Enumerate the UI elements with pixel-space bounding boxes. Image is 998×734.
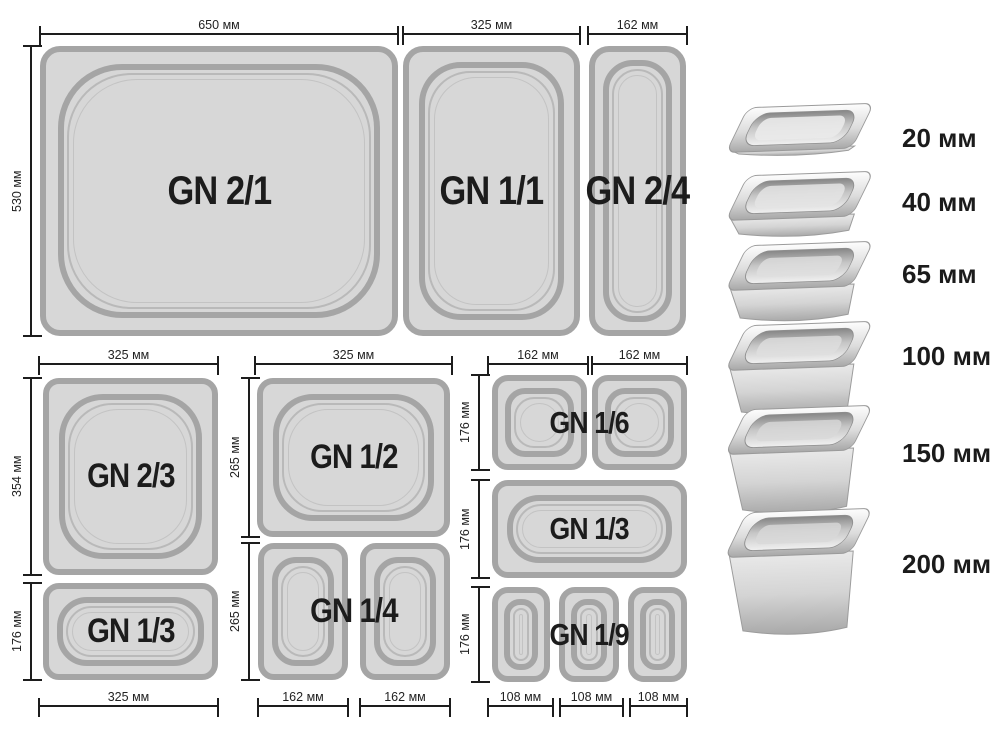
dim-label: 530 мм [6, 46, 28, 336]
dim-label: 354 мм [6, 378, 28, 575]
steel-pan-image [711, 97, 883, 167]
dim-162mm-top: 162 мм [588, 33, 687, 35]
steel-pan-photo-200mm [712, 505, 882, 648]
dim-176mm-d1: 176 мм [478, 375, 480, 470]
dim-label: 162 мм [592, 348, 687, 362]
pan-label-gn-1-4: GN 1/4 [258, 543, 450, 680]
depth-label-40mm: 40 мм [902, 187, 977, 218]
dim-label: 265 мм [224, 543, 246, 680]
pan-label: GN 2/4 [586, 169, 690, 214]
pan-gn-1-2: GN 1/2 [257, 378, 450, 537]
dim-162mm-c2: 162 мм [360, 705, 450, 707]
dim-176mm-d3: 176 мм [478, 587, 480, 682]
dim-176mm-d2: 176 мм [478, 480, 480, 578]
pan-gn-1-1: GN 1/1 [403, 46, 580, 336]
dim-265mm-b: 265 мм [248, 543, 250, 680]
dim-label: 176 мм [454, 587, 476, 682]
dim-label: 108 мм [560, 690, 623, 704]
pan-label: GN 1/4 [310, 592, 397, 631]
dim-108mm-1: 108 мм [488, 705, 553, 707]
dim-label: 265 мм [224, 378, 246, 537]
pan-label: GN 1/6 [550, 405, 629, 441]
pan-label-gn-1-9: GN 1/9 [492, 587, 687, 682]
steel-pan-image [711, 165, 884, 247]
dim-label: 108 мм [488, 690, 553, 704]
steel-pan-photo-20mm [712, 100, 882, 169]
depth-label-150mm: 150 мм [902, 438, 991, 469]
pan-label: GN 1/3 [87, 612, 174, 651]
pan-gn-1-3-left: GN 1/3 [43, 583, 218, 680]
dim-label: 176 мм [6, 583, 28, 680]
dim-325mm-c-top: 325 мм [255, 363, 452, 365]
dim-label: 162 мм [488, 348, 588, 362]
dim-label: 325 мм [39, 348, 218, 362]
dim-label: 325 мм [39, 690, 218, 704]
dim-label: 162 мм [588, 18, 687, 32]
gastronorm-diagram: 650 мм 325 мм 162 мм 530 мм GN 2/1 GN 1/… [0, 0, 998, 734]
dim-530mm: 530 мм [30, 46, 32, 336]
pan-label-gn-1-6: GN 1/6 [492, 375, 687, 470]
pan-label: GN 2/3 [87, 457, 174, 496]
dim-label: 325 мм [403, 18, 580, 32]
dim-265mm-a: 265 мм [248, 378, 250, 537]
depth-label-200mm: 200 мм [902, 549, 991, 580]
dim-325mm-top: 325 мм [403, 33, 580, 35]
dim-176mm-b: 176 мм [30, 583, 32, 680]
dim-650mm: 650 мм [40, 33, 398, 35]
pan-gn-2-3: GN 2/3 [43, 378, 218, 575]
pan-gn-2-1: GN 2/1 [40, 46, 398, 336]
dim-label: 176 мм [454, 375, 476, 470]
dim-162mm-c1: 162 мм [258, 705, 348, 707]
dim-label: 162 мм [360, 690, 450, 704]
dim-label: 176 мм [454, 480, 476, 578]
pan-label: GN 1/9 [550, 617, 629, 653]
pan-label: GN 2/1 [167, 169, 271, 214]
depth-label-20mm: 20 мм [902, 123, 977, 154]
depth-label-100mm: 100 мм [902, 341, 991, 372]
pan-label: GN 1/1 [440, 169, 544, 214]
dim-label: 650 мм [40, 18, 398, 32]
dim-162mm-d1: 162 мм [488, 363, 588, 365]
dim-108mm-2: 108 мм [560, 705, 623, 707]
pan-gn-1-3-right: GN 1/3 [492, 480, 687, 578]
dim-354mm: 354 мм [30, 378, 32, 575]
dim-108mm-3: 108 мм [630, 705, 687, 707]
pan-label: GN 1/2 [310, 438, 397, 477]
depth-label-65mm: 65 мм [902, 259, 977, 290]
dim-325mm-b-top: 325 мм [39, 363, 218, 365]
pan-gn-2-4: GN 2/4 [589, 46, 686, 336]
dim-label: 325 мм [255, 348, 452, 362]
dim-325mm-b-bottom: 325 мм [39, 705, 218, 707]
pan-label: GN 1/3 [550, 511, 629, 547]
dim-162mm-d2: 162 мм [592, 363, 687, 365]
dim-label: 108 мм [630, 690, 687, 704]
steel-pan-image [710, 502, 885, 646]
dim-label: 162 мм [258, 690, 348, 704]
